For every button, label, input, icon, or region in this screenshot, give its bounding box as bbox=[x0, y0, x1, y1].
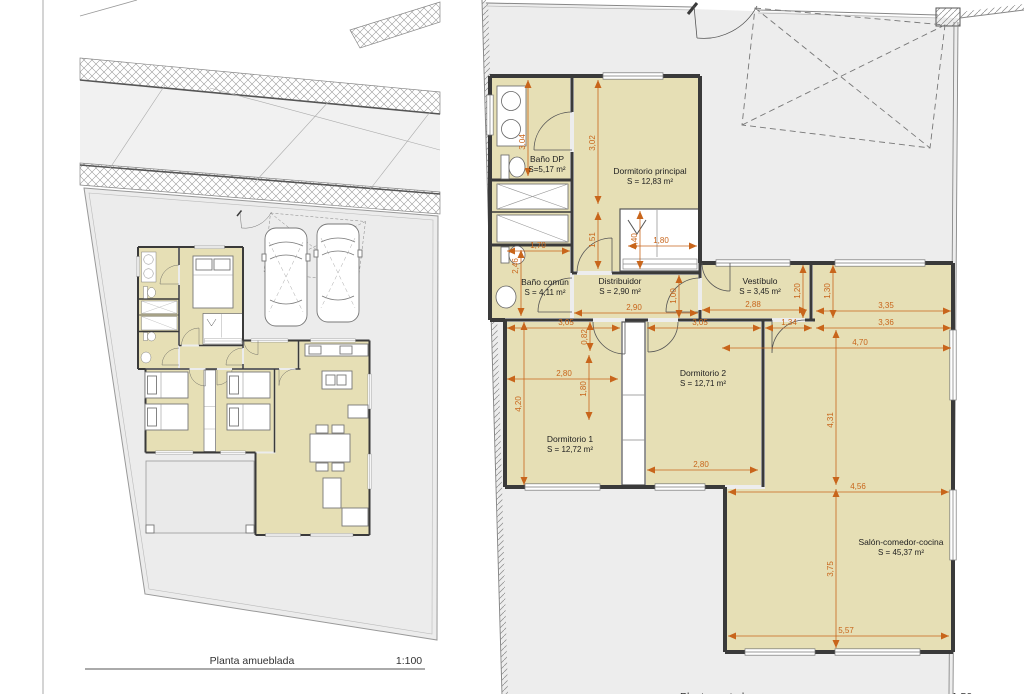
dimension-label: 2,80 bbox=[693, 460, 709, 469]
dimension-label: 4,31 bbox=[826, 412, 835, 428]
room-area-label: S = 3,45 m² bbox=[739, 287, 781, 296]
left-plan-scale: 1:100 bbox=[396, 655, 422, 667]
left-title-block: Planta amueblada 1:100 bbox=[85, 655, 425, 669]
dimension-label: 2,90 bbox=[626, 303, 642, 312]
dimension-label: 2,80 bbox=[556, 369, 572, 378]
dimension-label: 1,00 bbox=[669, 288, 678, 304]
dimension-label: 3,05 bbox=[558, 318, 574, 327]
dimension-label: 4,20 bbox=[514, 396, 523, 412]
left-plan: Planta amueblada 1:100 bbox=[80, 0, 440, 669]
room-label: Baño común bbox=[521, 277, 569, 287]
dimension-label: 0,82 bbox=[580, 329, 589, 345]
dimension-label: 4,56 bbox=[850, 482, 866, 491]
dimension-label: 3,75 bbox=[826, 561, 835, 577]
dimension-label: 2,88 bbox=[745, 300, 761, 309]
dimension-label: 3,02 bbox=[588, 135, 597, 151]
sideboard bbox=[348, 405, 368, 418]
left-plan-title: Planta amueblada bbox=[210, 655, 295, 667]
dimension-label: 1,51 bbox=[588, 232, 597, 248]
kitchen-island bbox=[322, 371, 352, 389]
dimension-label: 2,46 bbox=[511, 258, 520, 274]
boundary-pillar bbox=[936, 8, 960, 26]
room-area-label: S = 2,90 m² bbox=[599, 287, 641, 296]
dimension-label: 3,05 bbox=[692, 318, 708, 327]
dimension-label: 1,80 bbox=[653, 236, 669, 245]
room-label: Vestíbulo bbox=[743, 276, 778, 286]
dimension-label: 5,57 bbox=[838, 626, 854, 635]
room-area-label: S = 4,11 m² bbox=[525, 288, 566, 297]
room-area-label: S=5,17 m² bbox=[528, 165, 565, 174]
room-area-label: S = 45,37 m² bbox=[878, 548, 924, 557]
dimension-label: 1,20 bbox=[793, 283, 802, 299]
room-area-label: S = 12,72 m² bbox=[547, 445, 593, 454]
dimension-label: 4,70 bbox=[852, 338, 868, 347]
porch bbox=[146, 461, 254, 533]
room-label: Baño DP bbox=[530, 154, 564, 164]
dimension-label: 1,80 bbox=[579, 381, 588, 397]
dimension-label: 1,34 bbox=[781, 318, 797, 327]
dimension-label: 3,35 bbox=[878, 301, 894, 310]
road bbox=[80, 0, 440, 214]
room-label: Dormitorio 2 bbox=[680, 368, 727, 378]
double-bed-icon bbox=[193, 256, 233, 308]
dimension-label: 3,04 bbox=[518, 134, 527, 150]
dimension-label: 1,70 bbox=[530, 241, 546, 250]
crossing-road-hatch bbox=[350, 2, 440, 48]
room-label: Dormitorio principal bbox=[613, 166, 686, 176]
kitchen-counter bbox=[305, 344, 368, 356]
dimension-label: 1,30 bbox=[823, 283, 832, 299]
dimension-label: 3,36 bbox=[878, 318, 894, 327]
room-label: Dormitorio 1 bbox=[547, 434, 594, 444]
room-label: Distribuidor bbox=[599, 276, 642, 286]
right-plan: 3,043,021,511,402,461,701,801,002,902,88… bbox=[482, 0, 1024, 694]
room-label: Salón-comedor-cocina bbox=[858, 537, 943, 547]
room-area-label: S = 12,71 m² bbox=[680, 379, 726, 388]
room-area-label: S = 12,83 m² bbox=[627, 177, 673, 186]
drawing-sheet: Planta amueblada 1:100 3,043,021,511,402… bbox=[0, 0, 1024, 694]
